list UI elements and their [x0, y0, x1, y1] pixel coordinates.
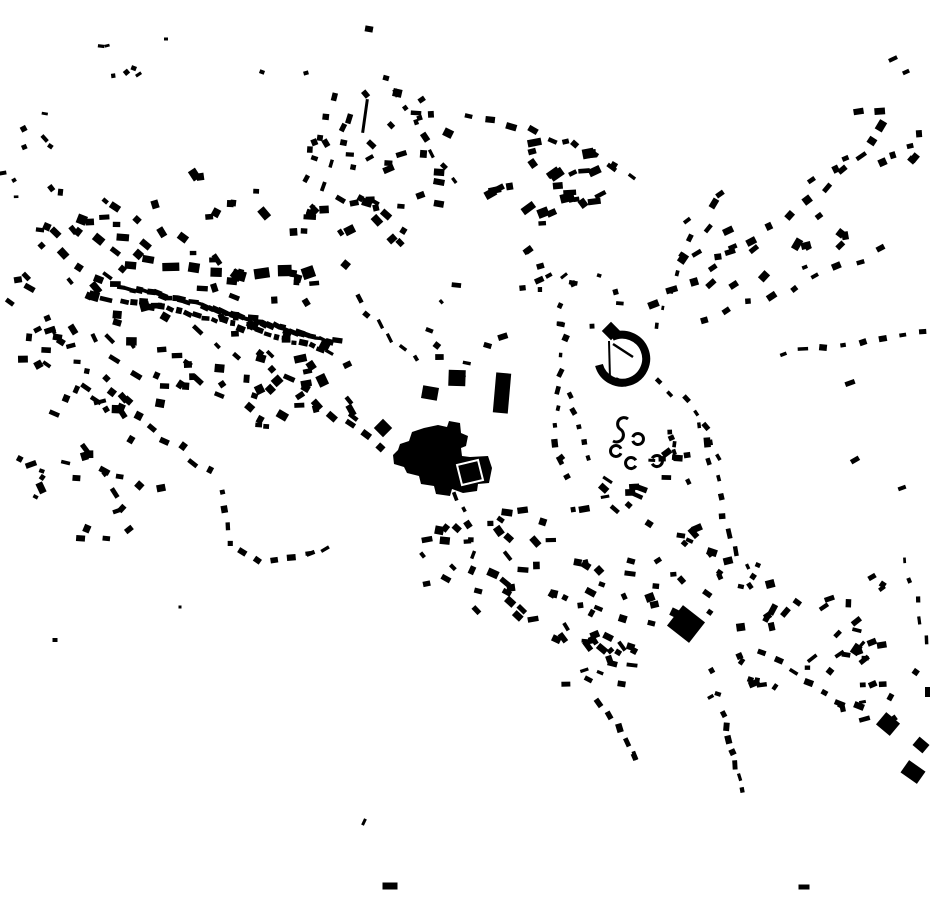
building [321, 138, 330, 148]
building [740, 787, 745, 793]
building [888, 55, 898, 62]
building [102, 536, 110, 542]
building [132, 248, 144, 260]
building [298, 339, 308, 347]
building [625, 489, 635, 496]
building [862, 656, 869, 661]
building [503, 533, 514, 544]
building [723, 556, 734, 565]
building [805, 665, 810, 669]
building [807, 653, 818, 663]
building [231, 331, 239, 337]
building [799, 885, 810, 890]
building [151, 303, 162, 309]
building [361, 99, 369, 133]
building [153, 371, 161, 380]
building [534, 276, 545, 285]
building [580, 667, 589, 673]
building [433, 178, 445, 186]
building [68, 324, 79, 336]
building [493, 525, 505, 537]
building [850, 456, 860, 465]
building [647, 620, 656, 627]
building [737, 773, 742, 781]
building [104, 44, 109, 48]
building [302, 298, 311, 308]
building [303, 70, 309, 75]
building [124, 525, 134, 534]
building [339, 123, 347, 133]
building [214, 342, 221, 349]
building [33, 494, 39, 500]
building [319, 206, 329, 214]
building [536, 262, 545, 269]
building [716, 475, 721, 482]
building [728, 748, 736, 756]
building [386, 333, 393, 343]
building [898, 485, 907, 491]
building [833, 630, 842, 639]
building [66, 277, 73, 285]
building [53, 638, 58, 642]
building [707, 694, 714, 700]
building [798, 347, 809, 351]
building [859, 338, 868, 346]
building [464, 113, 472, 119]
building [243, 374, 249, 383]
building [257, 206, 271, 220]
building [588, 609, 596, 618]
building [420, 150, 427, 158]
building [628, 173, 636, 180]
building [98, 44, 105, 48]
building [648, 459, 655, 462]
building [553, 182, 563, 190]
building [439, 536, 450, 545]
building [16, 455, 24, 463]
building [301, 265, 317, 280]
building [380, 209, 392, 221]
building [371, 214, 384, 227]
building [177, 232, 189, 244]
building [155, 398, 165, 408]
building [536, 206, 550, 218]
building [851, 616, 862, 627]
building [693, 410, 699, 417]
building [399, 344, 408, 352]
building [584, 587, 596, 598]
building [139, 238, 152, 250]
building [102, 374, 111, 383]
crescent-building-arc [599, 335, 646, 383]
building [421, 536, 433, 543]
building [47, 143, 54, 149]
building [596, 643, 608, 655]
building [718, 493, 725, 501]
building [220, 505, 228, 513]
building [57, 247, 70, 260]
building [291, 340, 296, 345]
building [259, 69, 265, 74]
building [76, 535, 85, 542]
building [545, 272, 553, 279]
building [601, 495, 610, 500]
building [561, 682, 570, 687]
building [134, 411, 144, 421]
building [142, 255, 155, 264]
building [278, 265, 292, 277]
building [387, 121, 395, 129]
building [503, 550, 513, 561]
building [618, 614, 628, 623]
building [672, 441, 676, 448]
building [644, 519, 653, 528]
building [553, 423, 558, 428]
building [463, 520, 473, 530]
building [340, 259, 351, 270]
building [428, 149, 435, 158]
building [912, 737, 929, 754]
building [39, 468, 45, 474]
building [701, 422, 710, 431]
building [561, 594, 568, 601]
building [771, 683, 778, 691]
building [819, 602, 829, 611]
building [150, 199, 159, 209]
building [714, 691, 721, 697]
building [157, 346, 167, 352]
building [116, 474, 124, 480]
building [780, 351, 787, 357]
building [578, 168, 590, 173]
building [360, 429, 372, 440]
building [428, 111, 434, 118]
building [417, 96, 425, 104]
building [372, 204, 379, 212]
building [652, 583, 659, 589]
building [547, 137, 557, 145]
building [506, 182, 514, 190]
building [602, 476, 613, 484]
building [331, 92, 338, 101]
building [283, 373, 296, 382]
building [877, 157, 887, 167]
building [164, 38, 168, 41]
building [655, 322, 659, 329]
ring-ruin [633, 434, 644, 445]
building [874, 107, 885, 115]
building [875, 244, 885, 253]
building [365, 25, 374, 32]
building [434, 525, 444, 535]
building [166, 296, 172, 301]
building [92, 233, 106, 246]
building [602, 632, 614, 642]
building [14, 276, 23, 283]
building [386, 233, 397, 244]
building [340, 139, 348, 146]
building [557, 321, 564, 326]
building [302, 174, 310, 183]
building [35, 481, 46, 494]
building [395, 150, 407, 158]
building [780, 607, 791, 618]
building [162, 263, 179, 272]
building [440, 574, 451, 583]
building [538, 517, 547, 526]
building [810, 272, 819, 279]
building [826, 667, 835, 676]
building [39, 474, 46, 481]
building [33, 326, 42, 334]
building [345, 113, 353, 124]
building [335, 195, 346, 204]
building [230, 199, 236, 206]
building [399, 227, 407, 235]
building [301, 228, 308, 234]
building [355, 293, 363, 303]
building [183, 310, 193, 318]
building [156, 484, 166, 493]
building [265, 384, 276, 395]
building [493, 372, 511, 413]
building [332, 337, 343, 344]
building [147, 423, 157, 433]
building [755, 562, 761, 568]
building [21, 144, 28, 150]
building [586, 455, 591, 461]
building [383, 883, 398, 890]
building [40, 134, 48, 143]
building [112, 405, 124, 414]
building [160, 383, 169, 389]
building [528, 148, 537, 156]
building [647, 299, 660, 310]
building [487, 521, 493, 526]
building [584, 149, 597, 159]
building [689, 277, 699, 287]
building [594, 698, 604, 709]
building [337, 229, 345, 237]
building [700, 316, 709, 324]
building [846, 599, 852, 607]
building [588, 198, 602, 206]
building [841, 652, 850, 658]
building [819, 344, 827, 351]
building [705, 457, 712, 465]
building [326, 411, 338, 423]
building [62, 394, 71, 403]
building [232, 352, 241, 361]
building [906, 577, 912, 584]
building [803, 678, 814, 687]
building [33, 359, 43, 369]
building [546, 538, 556, 542]
building [551, 439, 558, 448]
building [581, 439, 587, 445]
building [188, 262, 200, 273]
building [720, 710, 727, 718]
building [855, 151, 867, 161]
building [860, 682, 866, 687]
building [189, 373, 195, 380]
building [264, 331, 272, 337]
building [253, 267, 270, 279]
building [287, 554, 296, 561]
building [228, 541, 233, 546]
building [624, 570, 636, 576]
building [366, 139, 376, 149]
building [159, 437, 170, 446]
building [902, 69, 910, 76]
building [655, 377, 663, 385]
building [801, 194, 813, 205]
building [576, 424, 582, 429]
building [675, 270, 680, 277]
building [768, 622, 776, 631]
building [594, 605, 604, 612]
building [556, 368, 564, 378]
building [617, 680, 626, 687]
s-shaped-ruin [613, 418, 628, 442]
building [452, 523, 462, 533]
building [14, 195, 19, 198]
building [621, 593, 628, 601]
building [374, 419, 392, 437]
building [266, 350, 275, 359]
building [912, 668, 920, 676]
building [757, 649, 767, 657]
building [505, 122, 517, 131]
building [129, 288, 136, 294]
building [397, 204, 405, 209]
building [581, 639, 590, 644]
building [317, 135, 324, 142]
building [831, 261, 842, 271]
building [18, 356, 28, 363]
building [58, 189, 64, 196]
building [415, 191, 425, 200]
building [21, 272, 31, 282]
building [705, 278, 716, 289]
building [594, 190, 606, 199]
building [107, 387, 117, 397]
building [721, 306, 730, 315]
building [596, 273, 601, 278]
building [422, 580, 430, 587]
building [419, 551, 426, 558]
building [104, 333, 115, 344]
building [853, 108, 864, 116]
building [557, 302, 564, 309]
building [714, 253, 722, 260]
building [504, 596, 516, 608]
building [178, 441, 188, 451]
building [765, 579, 776, 589]
building [112, 310, 122, 319]
building [246, 321, 258, 330]
building [130, 65, 137, 71]
building [841, 155, 849, 162]
building [866, 136, 877, 147]
building [554, 386, 561, 395]
building [715, 453, 721, 461]
building [661, 306, 664, 311]
building [824, 595, 835, 603]
building [218, 380, 227, 389]
building [919, 329, 927, 335]
building [253, 189, 259, 194]
building [192, 311, 202, 319]
building [420, 132, 430, 143]
building [402, 105, 409, 112]
building [206, 466, 214, 475]
building [658, 456, 665, 462]
building [673, 455, 682, 462]
building [706, 609, 713, 616]
building [517, 506, 528, 514]
building [868, 680, 878, 689]
building [559, 353, 563, 358]
building [764, 222, 773, 231]
building [746, 582, 754, 590]
building [876, 641, 886, 649]
building [807, 176, 816, 184]
building [715, 190, 725, 199]
building [315, 373, 329, 388]
building [126, 435, 135, 445]
building [306, 550, 316, 557]
building [49, 226, 61, 238]
building [840, 705, 846, 712]
building [820, 689, 828, 697]
building [670, 572, 677, 577]
building [375, 442, 385, 452]
building [135, 71, 142, 77]
building [112, 508, 121, 515]
building [822, 182, 832, 193]
building [570, 140, 579, 149]
building [527, 138, 542, 148]
building [733, 546, 739, 556]
building [567, 391, 574, 399]
building [82, 524, 91, 534]
building [925, 687, 930, 697]
building [732, 760, 737, 769]
building [328, 159, 334, 168]
building [85, 218, 94, 225]
building [42, 360, 51, 368]
building [736, 623, 746, 632]
building [464, 539, 472, 544]
building [295, 391, 305, 400]
building [899, 333, 906, 338]
building [225, 522, 230, 530]
building [529, 535, 541, 548]
building [26, 333, 32, 341]
building [556, 405, 561, 411]
building [616, 301, 624, 305]
building [451, 282, 461, 288]
building [74, 262, 84, 272]
building [197, 285, 208, 291]
building [5, 298, 15, 307]
building [135, 286, 143, 294]
building [130, 299, 138, 306]
building [99, 214, 109, 220]
building [434, 168, 445, 176]
building [533, 562, 540, 570]
